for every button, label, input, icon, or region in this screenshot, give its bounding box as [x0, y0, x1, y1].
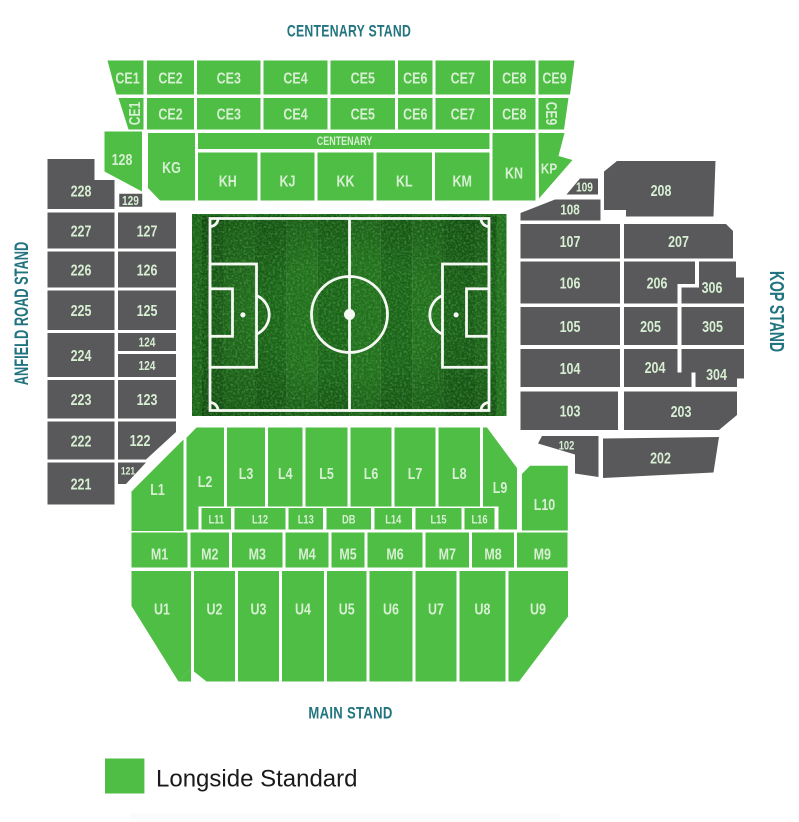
svg-text:KM: KM [453, 173, 472, 191]
svg-text:104: 104 [560, 360, 581, 378]
svg-text:M2: M2 [201, 546, 218, 564]
svg-text:126: 126 [137, 262, 158, 280]
svg-text:205: 205 [640, 318, 661, 336]
svg-text:202: 202 [650, 450, 671, 468]
svg-text:102: 102 [559, 439, 575, 452]
svg-text:124: 124 [139, 359, 156, 373]
svg-text:U6: U6 [383, 601, 399, 619]
svg-text:206: 206 [647, 275, 668, 293]
svg-text:M3: M3 [249, 546, 266, 564]
svg-text:CENTENARY: CENTENARY [317, 136, 373, 148]
svg-text:CE6: CE6 [403, 70, 427, 88]
svg-text:CE5: CE5 [351, 70, 375, 88]
svg-text:108: 108 [560, 201, 580, 218]
svg-text:103: 103 [560, 403, 581, 421]
svg-text:CE1: CE1 [126, 102, 144, 126]
svg-text:226: 226 [71, 262, 92, 280]
svg-text:129: 129 [122, 194, 139, 208]
svg-text:CE6: CE6 [403, 106, 427, 124]
svg-text:221: 221 [71, 476, 92, 494]
svg-text:204: 204 [645, 359, 666, 377]
svg-text:M8: M8 [484, 546, 501, 564]
svg-text:106: 106 [560, 275, 581, 293]
svg-text:U4: U4 [295, 601, 311, 619]
svg-text:L7: L7 [408, 465, 423, 483]
svg-text:107: 107 [560, 233, 581, 251]
svg-text:L14: L14 [385, 513, 401, 526]
svg-text:U7: U7 [428, 601, 444, 619]
svg-text:M6: M6 [386, 546, 403, 564]
svg-text:U9: U9 [530, 601, 546, 619]
svg-text:L2: L2 [198, 473, 213, 491]
svg-text:KJ: KJ [280, 173, 296, 191]
svg-text:KN: KN [505, 165, 523, 183]
svg-text:CE5: CE5 [351, 106, 375, 124]
svg-text:228: 228 [71, 183, 92, 201]
svg-text:L6: L6 [364, 465, 379, 483]
svg-text:KG: KG [162, 159, 181, 177]
svg-text:222: 222 [71, 433, 92, 451]
svg-text:U1: U1 [154, 601, 170, 619]
svg-text:KOP STAND: KOP STAND [765, 271, 788, 352]
svg-text:Longside Standard: Longside Standard [156, 766, 358, 793]
svg-text:CE7: CE7 [451, 70, 475, 88]
svg-text:CE1: CE1 [115, 70, 139, 88]
svg-text:L15: L15 [430, 513, 446, 526]
svg-text:KL: KL [396, 173, 413, 191]
svg-text:U3: U3 [251, 601, 267, 619]
svg-text:L13: L13 [298, 513, 314, 526]
svg-text:M1: M1 [151, 546, 168, 564]
svg-text:DB: DB [342, 513, 356, 526]
svg-text:CE9: CE9 [542, 70, 566, 88]
svg-text:U2: U2 [207, 601, 223, 619]
svg-text:CE3: CE3 [217, 70, 241, 88]
svg-text:L10: L10 [534, 496, 556, 514]
svg-text:122: 122 [130, 432, 151, 450]
svg-text:105: 105 [560, 318, 581, 336]
svg-text:L5: L5 [319, 465, 334, 483]
svg-text:L4: L4 [278, 465, 293, 483]
svg-text:M5: M5 [339, 546, 356, 564]
svg-text:128: 128 [112, 151, 133, 169]
svg-text:KK: KK [336, 173, 355, 191]
svg-text:123: 123 [137, 391, 158, 409]
svg-text:M9: M9 [534, 546, 551, 564]
svg-text:224: 224 [71, 347, 92, 365]
svg-text:L9: L9 [493, 479, 508, 497]
svg-text:L1: L1 [150, 481, 165, 499]
svg-text:CE8: CE8 [502, 70, 526, 88]
svg-text:KP: KP [541, 160, 557, 177]
svg-text:306: 306 [702, 279, 723, 297]
svg-text:L16: L16 [471, 513, 487, 526]
svg-text:CE7: CE7 [451, 106, 475, 124]
svg-text:M7: M7 [439, 546, 456, 564]
svg-text:124: 124 [139, 336, 156, 350]
svg-text:125: 125 [137, 303, 158, 321]
svg-text:CE8: CE8 [502, 106, 526, 124]
svg-text:M4: M4 [298, 546, 315, 564]
svg-text:L11: L11 [208, 513, 224, 526]
svg-text:207: 207 [668, 233, 689, 251]
svg-text:L3: L3 [239, 465, 254, 483]
svg-text:ANFIELD ROAD STAND: ANFIELD ROAD STAND [11, 242, 32, 386]
svg-text:CE4: CE4 [283, 70, 307, 88]
svg-text:U8: U8 [475, 601, 491, 619]
svg-text:L12: L12 [252, 513, 268, 526]
svg-text:KH: KH [219, 173, 237, 191]
svg-text:305: 305 [702, 318, 723, 336]
svg-text:MAIN STAND: MAIN STAND [308, 704, 392, 723]
svg-text:227: 227 [71, 223, 92, 241]
svg-text:127: 127 [137, 223, 158, 241]
svg-text:L8: L8 [452, 465, 467, 483]
svg-text:304: 304 [706, 366, 727, 384]
svg-text:225: 225 [71, 303, 92, 321]
svg-text:CENTENARY STAND: CENTENARY STAND [287, 23, 411, 41]
svg-text:CE9: CE9 [543, 102, 561, 126]
svg-text:CE2: CE2 [158, 70, 182, 88]
svg-text:208: 208 [651, 182, 672, 200]
svg-text:CE4: CE4 [283, 106, 307, 124]
svg-text:109: 109 [576, 181, 593, 195]
svg-text:U5: U5 [339, 601, 355, 619]
svg-text:223: 223 [71, 391, 92, 409]
svg-text:CE3: CE3 [217, 106, 241, 124]
svg-text:121: 121 [121, 466, 136, 478]
svg-text:203: 203 [671, 403, 692, 421]
svg-text:CE2: CE2 [158, 106, 182, 124]
